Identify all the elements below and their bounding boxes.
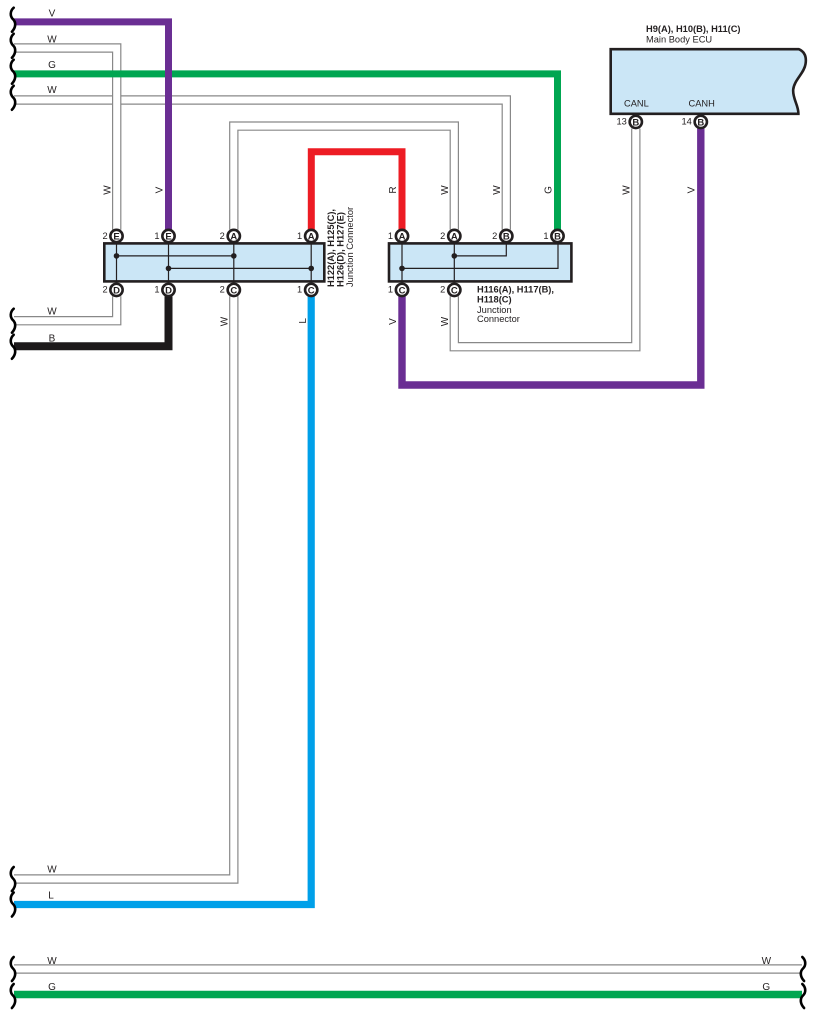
- svg-text:CANL: CANL: [624, 98, 649, 108]
- svg-text:C: C: [308, 285, 315, 296]
- svg-text:W: W: [622, 185, 633, 195]
- svg-text:A: A: [308, 232, 315, 243]
- svg-text:B: B: [503, 232, 510, 243]
- svg-text:G: G: [48, 60, 56, 71]
- svg-text:W: W: [47, 865, 57, 876]
- svg-text:2: 2: [440, 285, 445, 295]
- svg-text:2: 2: [103, 285, 108, 295]
- svg-text:2: 2: [220, 231, 225, 241]
- svg-text:H9(A), H10(B), H11(C): H9(A), H10(B), H11(C): [646, 24, 741, 34]
- svg-text:C: C: [451, 285, 458, 296]
- svg-text:W: W: [762, 956, 772, 967]
- svg-text:R: R: [388, 186, 399, 193]
- svg-text:2: 2: [220, 285, 225, 295]
- svg-text:CANH: CANH: [689, 98, 715, 108]
- svg-text:A: A: [451, 232, 458, 243]
- svg-text:W: W: [103, 185, 114, 195]
- svg-text:2: 2: [103, 231, 108, 241]
- svg-text:V: V: [49, 8, 56, 19]
- svg-text:H118(C): H118(C): [477, 295, 512, 305]
- svg-text:V: V: [687, 186, 698, 193]
- svg-text:G: G: [48, 982, 56, 993]
- svg-text:1: 1: [297, 231, 302, 241]
- svg-text:E: E: [165, 232, 171, 243]
- svg-text:D: D: [165, 285, 172, 296]
- svg-text:A: A: [399, 232, 406, 243]
- svg-text:13: 13: [616, 117, 626, 127]
- svg-text:A: A: [230, 232, 237, 243]
- svg-text:H126(D), H127(E): H126(D), H127(E): [336, 212, 346, 287]
- svg-text:B: B: [697, 117, 704, 128]
- svg-text:B: B: [49, 333, 56, 344]
- svg-text:2: 2: [440, 231, 445, 241]
- svg-text:1: 1: [154, 231, 159, 241]
- svg-text:1: 1: [388, 231, 393, 241]
- svg-text:W: W: [47, 956, 57, 967]
- svg-text:W: W: [47, 85, 57, 96]
- svg-text:C: C: [399, 285, 406, 296]
- svg-text:W: W: [47, 35, 57, 46]
- svg-text:2: 2: [492, 231, 497, 241]
- svg-text:G: G: [543, 186, 554, 194]
- svg-text:14: 14: [681, 117, 691, 127]
- svg-text:C: C: [230, 285, 237, 296]
- svg-text:W: W: [492, 185, 503, 195]
- svg-text:H116(A), H117(B),: H116(A), H117(B),: [477, 285, 554, 295]
- svg-text:1: 1: [297, 285, 302, 295]
- svg-text:L: L: [298, 318, 309, 324]
- svg-text:L: L: [48, 891, 54, 902]
- svg-text:W: W: [440, 185, 451, 195]
- svg-text:W: W: [47, 307, 57, 318]
- svg-text:G: G: [762, 982, 770, 993]
- svg-text:B: B: [632, 117, 639, 128]
- svg-text:H122(A), H125(C),: H122(A), H125(C),: [326, 209, 336, 287]
- svg-text:V: V: [388, 318, 399, 325]
- svg-text:E: E: [113, 232, 119, 243]
- svg-text:V: V: [154, 186, 165, 193]
- svg-text:1: 1: [154, 285, 159, 295]
- svg-text:Connector: Connector: [477, 314, 520, 324]
- svg-text:Junction Connector: Junction Connector: [345, 207, 355, 287]
- svg-text:W: W: [440, 316, 451, 326]
- svg-text:B: B: [554, 232, 561, 243]
- svg-text:W: W: [220, 316, 231, 326]
- svg-text:Main Body ECU: Main Body ECU: [646, 35, 712, 45]
- svg-text:1: 1: [388, 285, 393, 295]
- svg-text:D: D: [113, 285, 120, 296]
- svg-text:1: 1: [543, 231, 548, 241]
